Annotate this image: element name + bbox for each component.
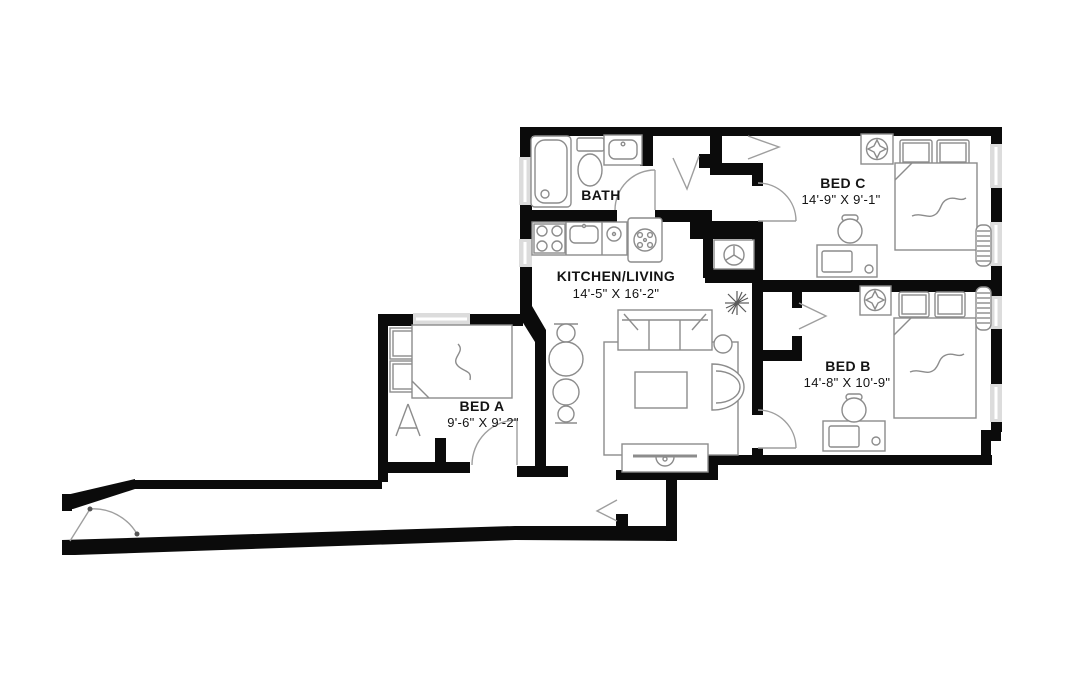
wall-beda-top-right [468,314,523,326]
bed-b-label: BED B [825,358,871,374]
bed-c-dims: 14'-9" X 9'-1" [801,192,880,207]
closet-chevron-icon [673,156,699,189]
side-table-icon [714,335,732,353]
ceiling-fan-icon [860,286,891,315]
plant-icon [725,291,749,315]
desk-icon [823,421,885,451]
sofa-icon [618,310,712,350]
kitchen-living-dims: 14'-5" X 16'-2" [573,286,660,301]
armchair-icon [712,364,744,410]
wall-corridor-right [666,473,677,541]
wall-bedb-closet-stub-bottom [792,336,802,352]
wall-beda-door-stub [435,438,446,464]
dining-set-icon [549,324,583,423]
wall-corridor-stub [616,514,628,528]
floor-plan-svg: BATH KITCHEN/LIVING 14'-5" X 16'-2" BED … [0,0,1080,699]
radiator-icon [976,287,991,330]
wall-tee [517,466,568,477]
office-chair-icon [842,394,866,422]
desk-icon [817,245,877,277]
wall-corridor-bottom [62,526,677,555]
door-swing-icon [615,170,655,210]
wall-heater-bottom [705,268,763,283]
vanity-sink-icon [604,135,642,165]
kitchen-sink-icon [570,225,598,244]
washer-icon [607,227,621,241]
toilet-icon [577,138,604,186]
door-swing-icon [758,410,796,448]
wall-right-lower [981,437,991,460]
stove-icon [534,224,565,253]
wall-bath-bottom-right [655,210,712,222]
wall-divider-lower-stub [752,448,763,465]
bath-label: BATH [581,187,620,203]
pillow-icon [902,295,926,314]
wall-bedb-closet-stub-top [792,292,802,308]
pillow-icon [940,143,966,162]
kitchen-living-label: KITCHEN/LIVING [557,268,675,284]
wall-left-upper [520,127,532,318]
bed-a-dims: 9'-6" X 9'-2" [447,415,519,430]
entry-door-icon [70,507,140,542]
bed-c-label: BED C [820,175,866,191]
wall-corridor-diagonal [62,479,135,509]
closet-chevron-icon [597,500,617,521]
wall-bedc-closet-bottom [710,163,763,175]
closet-chevron-icon [799,303,826,329]
radiator-icon [976,225,991,266]
pillow-icon [903,143,929,162]
wall-heater-top [690,221,757,239]
bed-icon [895,140,977,250]
pillow-icon [938,295,962,314]
bathtub-icon [531,136,571,207]
wall-bath-bottom-left [521,210,617,222]
wall-beda-bottom [386,462,470,473]
tv-console-icon [622,444,708,472]
wall-bedc-closet-left [710,136,722,163]
wall-corridor-top [135,480,382,489]
wall-bedb-closet-bottom [762,350,802,361]
range-icon [628,218,662,262]
door-swing-icon [758,183,796,221]
wall-top [520,127,1002,136]
closet-chevron-icon [748,136,779,159]
ceiling-fan-icon [861,134,893,164]
bed-b-dims: 14'-8" X 10'-9" [804,375,891,390]
water-heater-icon [714,240,754,269]
wall-entry-cap [62,494,72,511]
bed-icon [390,325,512,398]
wall-beda-left [378,314,388,482]
easel-icon [396,404,420,436]
office-chair-icon [838,215,862,243]
wall-left-lower [535,332,546,468]
floor-plan: BATH KITCHEN/LIVING 14'-5" X 16'-2" BED … [0,0,1080,699]
coffee-table-icon [635,372,687,408]
bed-a-label: BED A [459,398,504,414]
bed-icon [894,292,976,418]
